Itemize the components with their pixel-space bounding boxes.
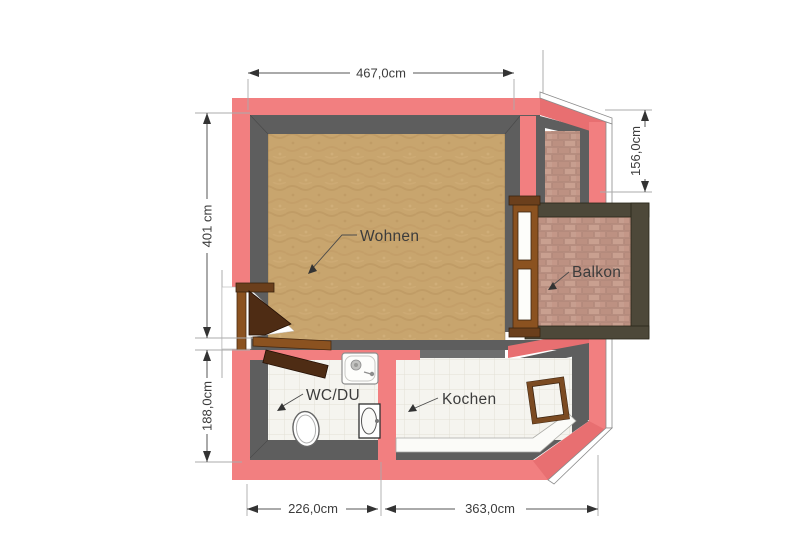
lining-recess-left (536, 126, 545, 205)
entrance-lintel (236, 283, 274, 292)
entrance-opening (222, 287, 251, 349)
floor-plan-canvas: 467,0cm 401 cm 188,0cm 156,0cm (0, 0, 800, 552)
wall-recess-left (520, 116, 536, 205)
balkon-door-cap-bottom (509, 328, 540, 337)
lining-right-upper (505, 134, 520, 205)
balkon-door-pane-lower (518, 269, 531, 320)
wall-kitchen-right (589, 331, 606, 430)
dim-label-right: 156,0cm (628, 126, 643, 176)
lining-top (250, 115, 540, 134)
dim-label-left-upper: 401 cm (200, 205, 215, 248)
dim-label-left-lower: 188,0cm (200, 381, 215, 431)
shower-tray (342, 353, 378, 384)
balkon-door-pane-upper (518, 212, 531, 260)
wall-right-upper (589, 122, 606, 205)
entrance-jamb (237, 286, 246, 350)
washbasin-bowl (362, 408, 377, 434)
balkon-label: Balkon (572, 264, 621, 281)
balkon-recess-floor (545, 131, 580, 205)
washbasin-tap (375, 419, 379, 423)
lining-kochen-right (572, 343, 589, 420)
dim-label-bottom-right: 363,0cm (465, 501, 515, 516)
balkon-rail-right (631, 203, 649, 338)
wall-divider-vertical (378, 352, 396, 460)
dim-label-top: 467,0cm (356, 66, 406, 81)
wcdu-label: WC/DU (306, 387, 360, 404)
shower-drain-center (354, 363, 358, 367)
floor-plan-page: 467,0cm 401 cm 188,0cm 156,0cm (0, 0, 800, 552)
shower-tap-knob (370, 372, 374, 376)
balkon-rail-bottom (525, 326, 649, 339)
lining-divider-low (420, 350, 505, 358)
kochen-label: Kochen (442, 391, 496, 408)
wall-bottom (232, 460, 548, 480)
lining-right-lower (505, 205, 513, 332)
washbasin (359, 404, 380, 438)
lining-recess-right (580, 131, 589, 205)
balkon-door-cap-top (509, 196, 540, 205)
wall-top (232, 98, 540, 115)
dim-label-bottom-left: 226,0cm (288, 501, 338, 516)
wohnen-label: Wohnen (360, 228, 419, 245)
